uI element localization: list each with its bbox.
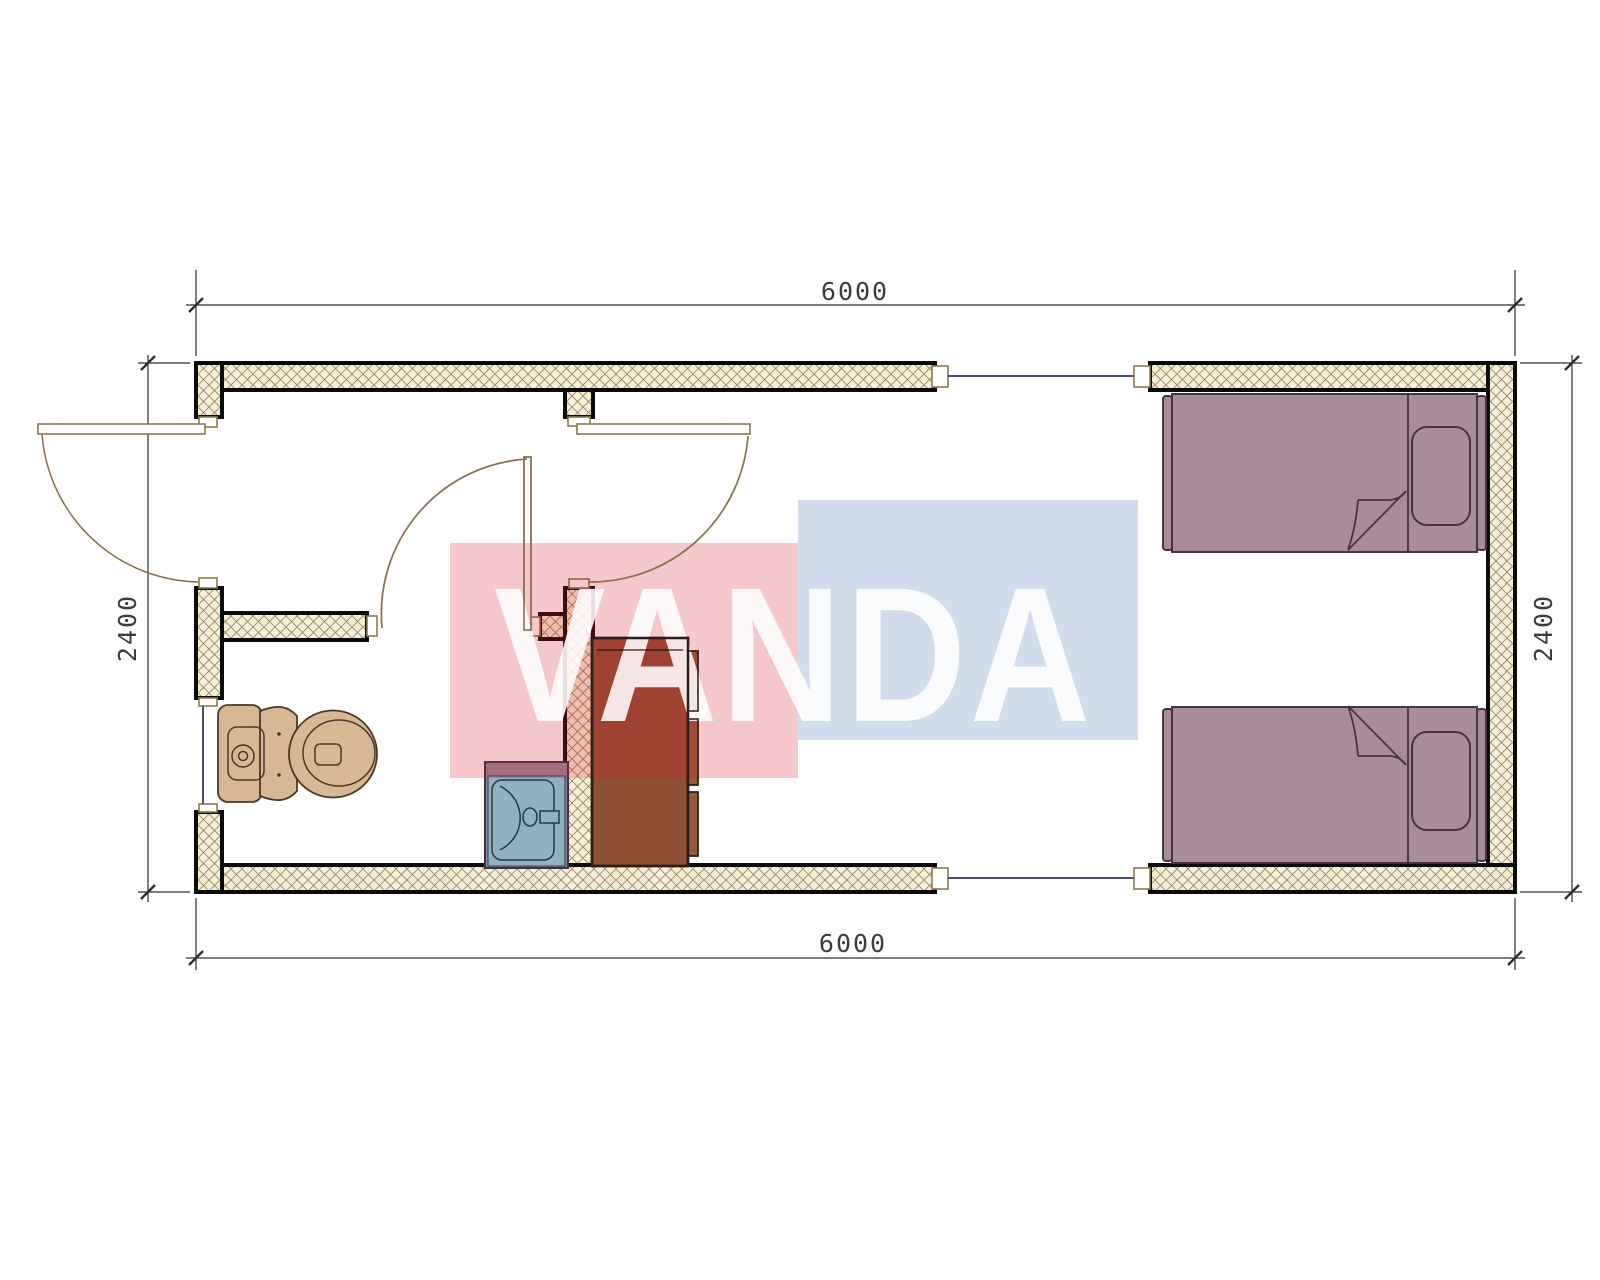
dimension-bottom: 6000	[186, 898, 1525, 970]
wall-left-top-pier	[196, 363, 222, 417]
floor-plan-drawing: 6000 6000 2400 2400	[0, 0, 1600, 1280]
wall-left-bottom-pier	[196, 812, 222, 892]
window-jamb-cap	[1134, 366, 1150, 387]
bed-headboard	[1477, 396, 1486, 550]
bed-top	[1163, 394, 1486, 552]
dimension-top-label: 6000	[821, 277, 889, 306]
dimension-right-label: 2400	[1529, 594, 1558, 662]
bed-pillow	[1412, 732, 1470, 830]
entrance-door	[38, 424, 205, 582]
dimension-top: 6000	[186, 270, 1525, 356]
dimension-bottom-label: 6000	[819, 929, 887, 958]
window-jamb-cap	[199, 698, 217, 706]
dimension-right: 2400	[1520, 355, 1582, 902]
bed-bottom	[1163, 706, 1486, 863]
toilet	[218, 705, 377, 802]
toilet-bolt	[277, 773, 281, 777]
toilet-bolt	[277, 732, 281, 736]
bedroom-partition-top-stub	[565, 390, 593, 417]
door-jamb-cap	[367, 616, 377, 636]
entrance-door-swing-arc	[42, 434, 199, 582]
window-jamb-cap	[932, 868, 948, 889]
wall-top-left	[196, 363, 935, 390]
entrance-door-leaf	[38, 424, 205, 434]
dimension-left-label: 2400	[113, 594, 142, 662]
bathroom-partition-stub	[222, 613, 367, 640]
bed-footboard	[1163, 396, 1172, 550]
bed-headboard	[1477, 709, 1486, 861]
wall-top-right	[1150, 363, 1515, 390]
dimension-left-extension-lines	[138, 363, 190, 892]
bed-pillow	[1412, 427, 1470, 525]
wardrobe-side-panel	[688, 792, 698, 856]
window-jamb-cap	[932, 366, 948, 387]
window-jamb-cap	[199, 804, 217, 812]
watermark: VANDA	[450, 500, 1138, 778]
floor-plan-page: 6000 6000 2400 2400	[0, 0, 1600, 1280]
door-jamb-cap	[199, 578, 217, 588]
sink-faucet	[540, 811, 559, 823]
watermark-text: VANDA	[494, 547, 1094, 762]
wall-left-middle-pier	[196, 588, 222, 698]
window-jamb-cap	[1134, 868, 1150, 889]
toilet-bowl	[289, 711, 377, 798]
wall-bottom-right	[1150, 865, 1515, 892]
wall-bottom-left	[196, 865, 935, 892]
bed-footboard	[1163, 709, 1172, 861]
dimension-left: 2400	[113, 355, 190, 902]
sink-drain	[523, 808, 537, 826]
bedroom-door-leaf	[577, 424, 750, 434]
wall-right	[1488, 363, 1515, 892]
